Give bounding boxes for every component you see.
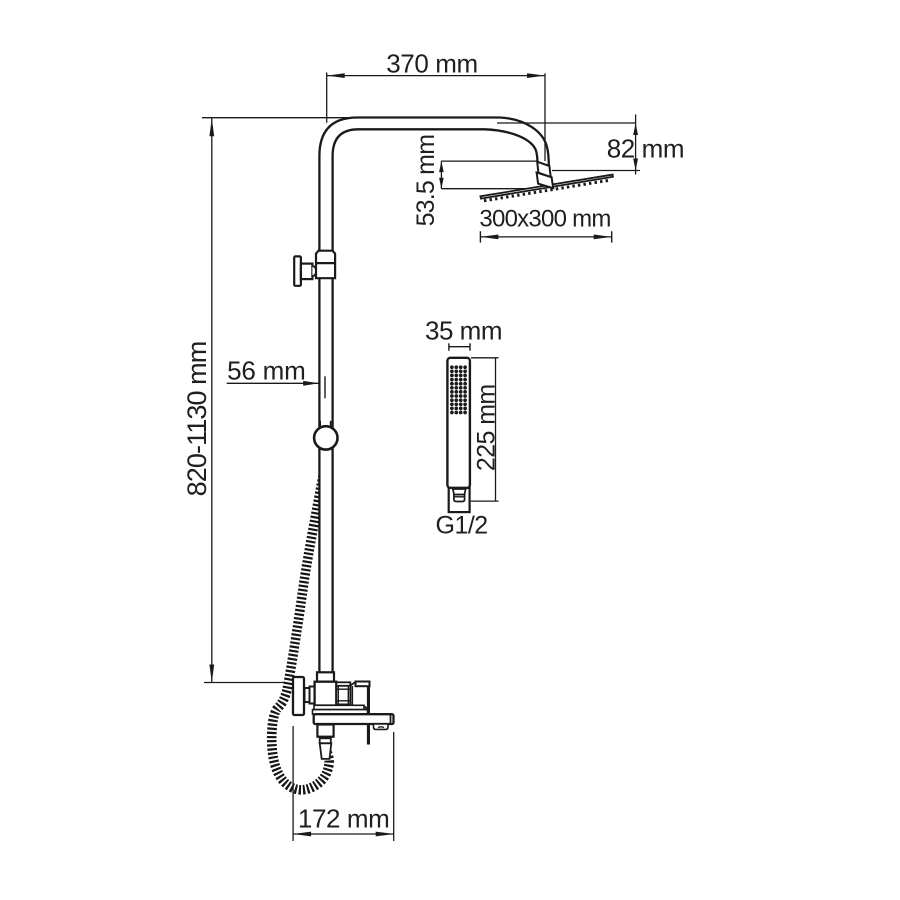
svg-text:172 mm: 172 mm [298, 804, 390, 834]
svg-text:82 mm: 82 mm [607, 133, 684, 163]
svg-text:56 mm: 56 mm [227, 356, 305, 386]
svg-text:G1/2: G1/2 [436, 512, 488, 540]
svg-text:300x300 mm: 300x300 mm [479, 206, 610, 233]
svg-text:820-1130 mm: 820-1130 mm [182, 342, 212, 497]
svg-text:35 mm: 35 mm [425, 316, 502, 346]
svg-text:370 mm: 370 mm [386, 49, 478, 79]
svg-text:53.5 mm: 53.5 mm [412, 135, 440, 227]
svg-text:225 mm: 225 mm [472, 384, 500, 471]
